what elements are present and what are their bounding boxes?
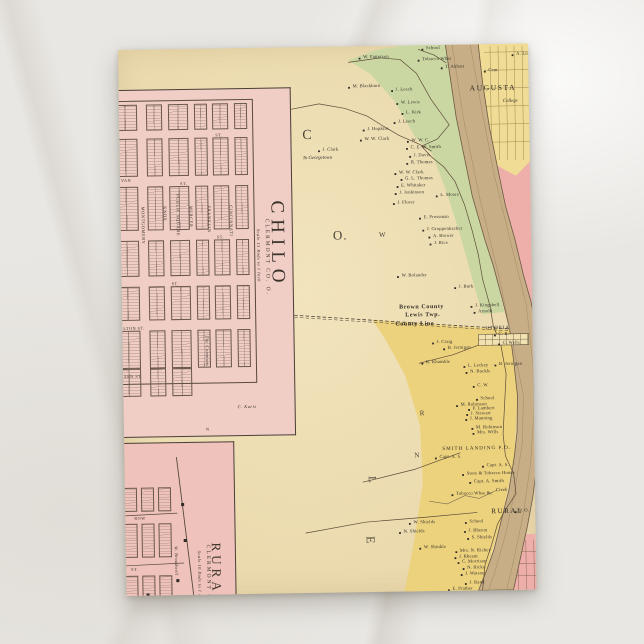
map-label: Capt. A. S. — [487, 463, 509, 468]
map-label: J. Rice — [434, 241, 448, 246]
map-postcard: CHILO CLERMONT CO. O. Scale 15 Rods to 1… — [118, 44, 537, 596]
map-label: J. Burk — [459, 284, 474, 289]
map-label: College — [503, 100, 518, 105]
map-label: P. O. — [519, 509, 529, 514]
map-label: Tobacco Whse — [422, 57, 451, 62]
map-label: Brown County — [399, 304, 444, 311]
map-label: School — [469, 519, 483, 524]
map-label: J. Hopkins — [367, 127, 389, 132]
map-label: N. Buckle — [470, 369, 491, 374]
map-label: W. W. C. — [411, 138, 429, 143]
map-label: T. Abbott — [445, 65, 464, 70]
map-label: School — [426, 46, 440, 51]
map-label: G. L. Thomas — [405, 176, 433, 181]
territory-letter: W — [379, 232, 387, 239]
map-label: J. Clark — [323, 148, 339, 153]
map-label: J. Rand — [469, 580, 484, 585]
map-label: W. Lewis — [401, 100, 420, 105]
map-label: Store & Tobacco House — [467, 471, 515, 476]
map-label: Arnold — [478, 309, 492, 314]
territory-letter: O. — [333, 228, 348, 241]
map-label: W. Shinkle — [424, 545, 446, 550]
map-label: E. Whitaker — [401, 183, 425, 188]
map-label: J. Florer — [397, 200, 414, 205]
map-label: C. W. — [477, 383, 488, 388]
map-label: Lewis Twp. — [405, 312, 440, 319]
map-label: J. Leech — [396, 87, 413, 92]
map-label: J. Watson — [465, 571, 485, 576]
map-label: J. Groppenbacher — [427, 227, 463, 232]
map-label: Capt. A. S. — [439, 455, 461, 460]
map-label: W. Shields — [413, 520, 435, 525]
territory-letter: C — [302, 129, 313, 143]
map-label: J. Davis — [414, 153, 430, 158]
map-label: Cem. — [488, 68, 499, 73]
map-labels: W. PattersonSchoolTobacco WhseT. AbbottM… — [118, 44, 537, 596]
map-label: C. E. W. Smith — [411, 145, 441, 150]
map-label: S. Shields — [472, 535, 492, 540]
map-label: B. Jernigan — [448, 345, 471, 350]
territory-letter: N — [414, 452, 420, 459]
map-label: B. Jernigan — [499, 362, 522, 367]
map-label: J. Manning — [470, 416, 493, 421]
map-label: J. Jenkinson — [399, 190, 424, 195]
map-label: J. Rheem — [469, 528, 488, 533]
map-label: R. Khamble — [426, 360, 450, 365]
map-label: Creek — [496, 489, 507, 494]
map-label: To Georgetown — [303, 157, 332, 162]
territory-letter: L — [366, 476, 377, 484]
map-label: W. Bolander — [402, 273, 427, 278]
territory-letter: R — [420, 410, 426, 417]
map-label: M. Blackburn — [353, 84, 381, 89]
map-label: J. Leech — [398, 119, 415, 124]
map-label: E. Prossman — [424, 215, 449, 220]
map-label: SMITH LANDING P.O. — [442, 446, 511, 452]
map-label: C. Wells — [503, 341, 520, 346]
map-label: E. Prather — [452, 586, 472, 591]
map-label: Mrs. Wills — [477, 430, 498, 435]
map-label: W. W. Clark — [364, 137, 389, 142]
map-label: AUGUSTA — [470, 84, 517, 92]
map-label: W. Patterson — [363, 55, 389, 60]
map-label: Capt. A. Smith — [474, 479, 504, 484]
marble-desk: { "postcard": { "description": "Antique … — [0, 0, 644, 644]
map-label: A. Long — [516, 51, 533, 56]
map-label: A. Brewer — [433, 234, 454, 239]
map-label: County Line — [395, 321, 434, 328]
map-label: N. Shields — [404, 529, 425, 534]
map-label: R. Thomas — [411, 160, 433, 165]
map-label: L. Moore — [440, 193, 459, 198]
map-label: School — [480, 396, 494, 401]
map-label: Tobacco Whse &c — [456, 491, 493, 496]
territory-letter: E — [365, 536, 377, 545]
map-label: L. Kirk — [406, 110, 421, 115]
map-label: C. B. — [498, 332, 509, 337]
